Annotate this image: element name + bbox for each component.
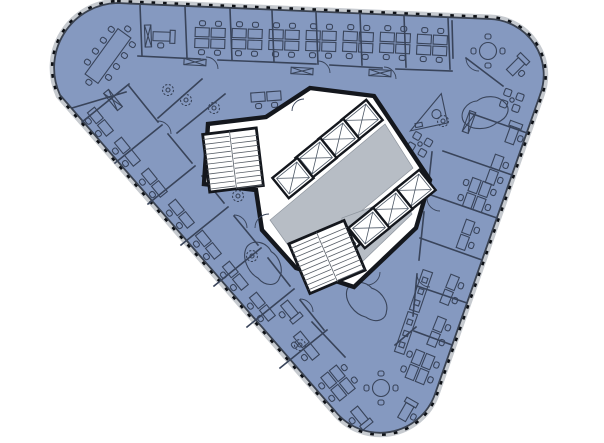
stair [203, 128, 264, 192]
floor-plan [0, 0, 604, 443]
partition-wall [452, 21, 453, 58]
floor-plan-svg [0, 0, 604, 443]
